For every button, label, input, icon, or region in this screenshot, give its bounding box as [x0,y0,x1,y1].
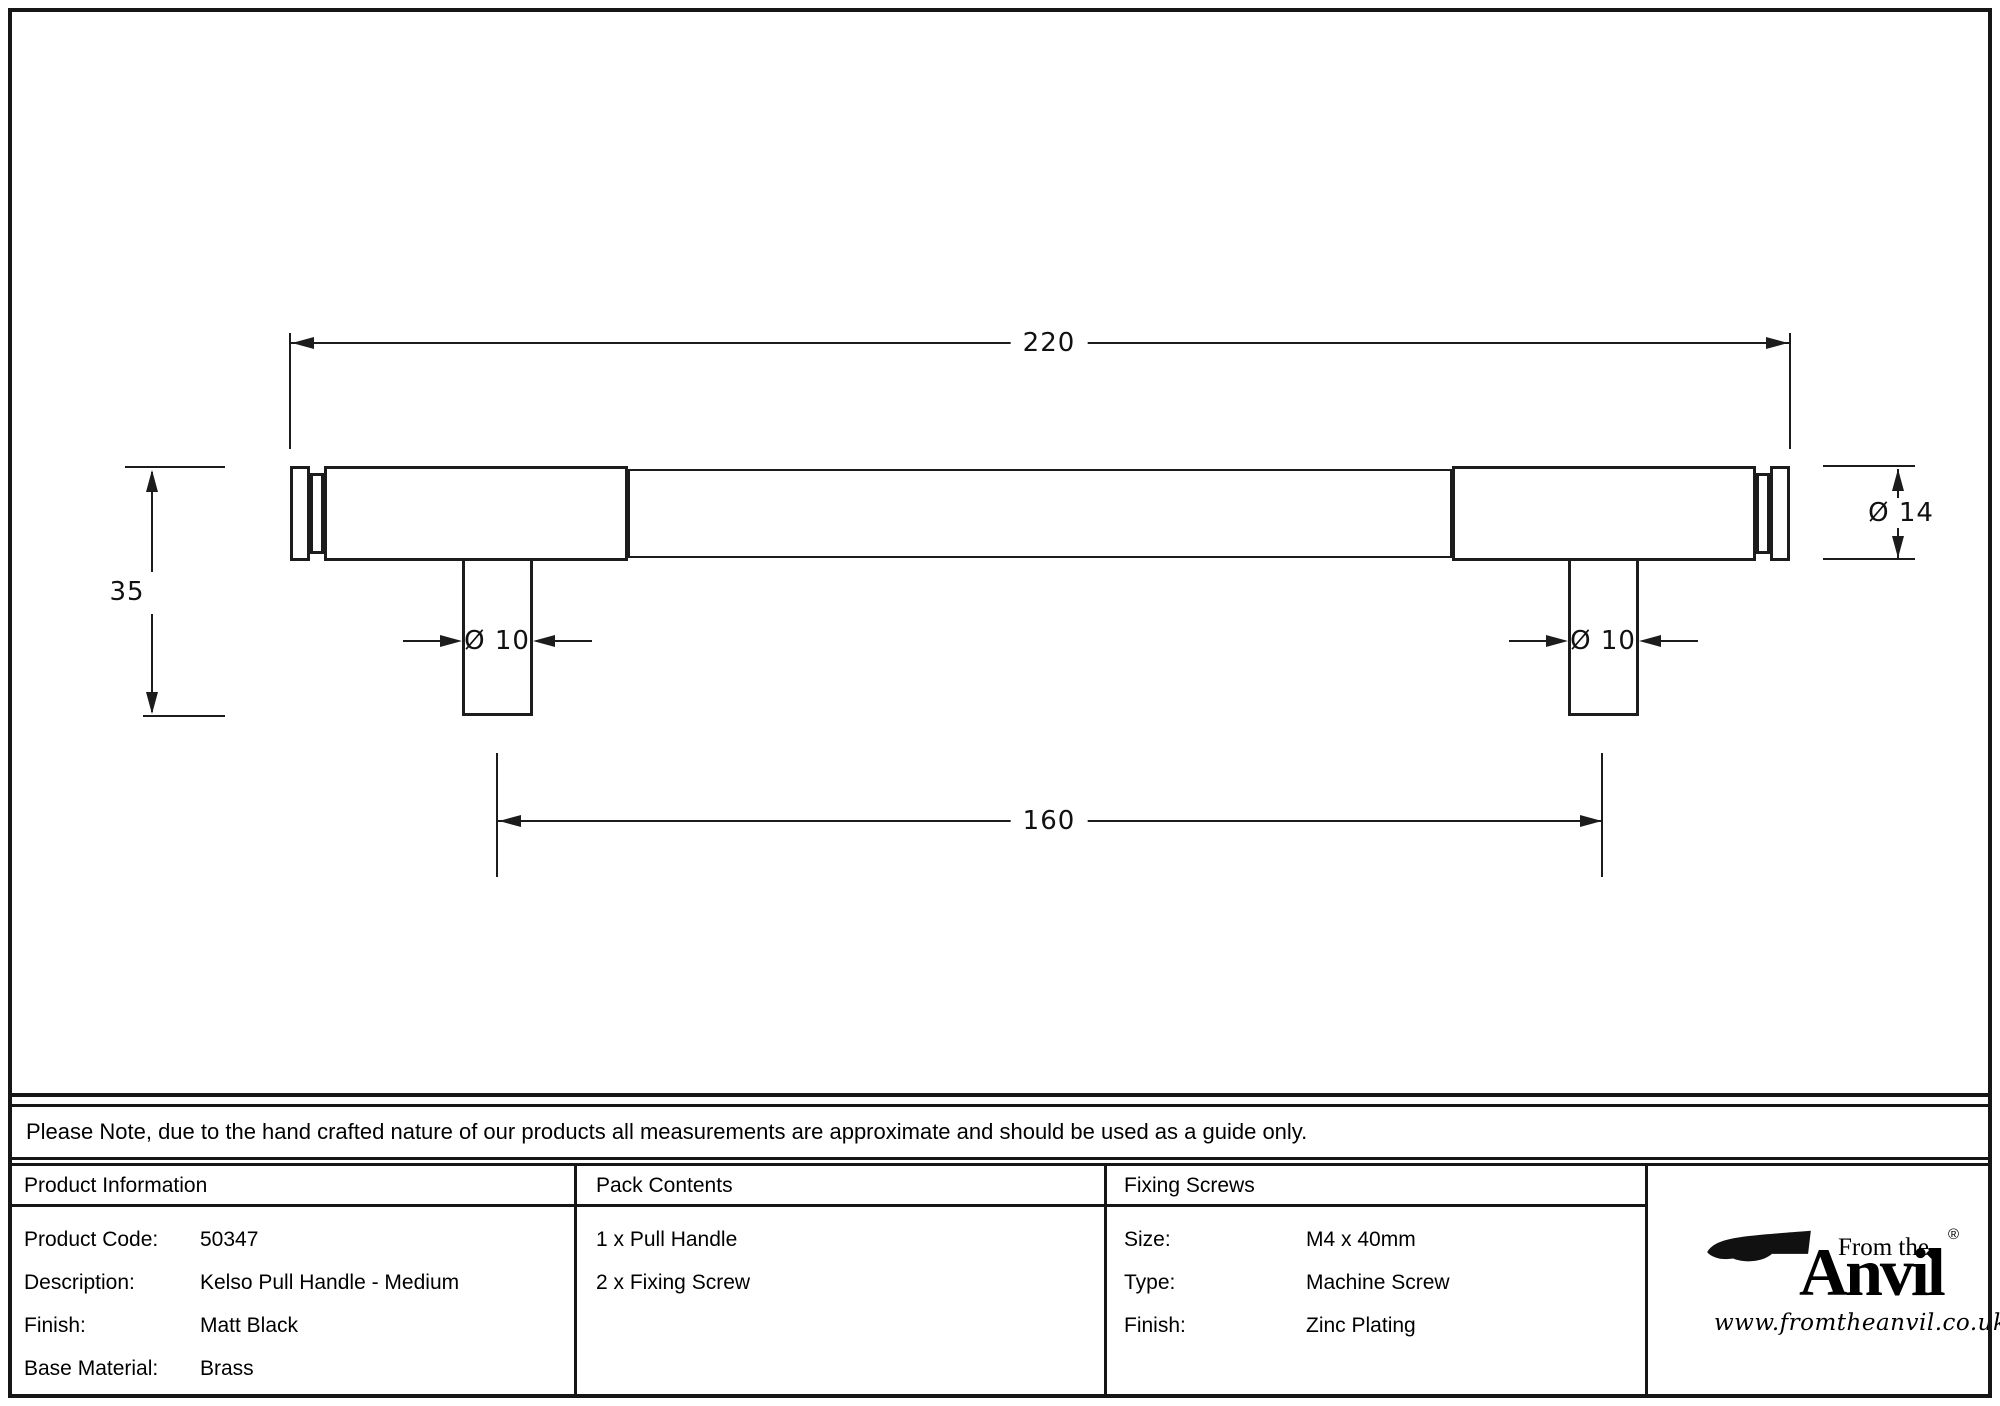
dim-arrow-icon [499,815,521,827]
dim-height-label: 35 [109,577,144,607]
extension-line [289,333,291,449]
column-divider [1645,1163,1648,1398]
row-label: Finish: [1124,1312,1306,1340]
header-product-information: Product Information [24,1172,207,1200]
dim-arrow-icon [1892,469,1904,491]
tick-line [1823,558,1915,560]
handle-grip-left [324,466,628,561]
page-border [8,8,1992,1398]
extension-line [1789,333,1791,449]
row-label: Base Material: [24,1355,200,1383]
column-divider [1104,1163,1107,1398]
table-row: Base Material:Brass [24,1355,254,1383]
registered-mark: ® [1948,1226,1959,1243]
brand-url: www.fromtheanvil.co.uk [1714,1310,2000,1336]
dim-arrow-icon [146,470,158,492]
row-value: Kelso Pull Handle - Medium [200,1271,459,1294]
dim-arrow-icon [533,635,555,647]
dim-post-diameter-right-label: Ø 10 [1570,626,1636,656]
handle-centre-bar [628,469,1452,558]
handle-grip-right [1452,466,1756,561]
handle-end-cap-left [290,466,310,561]
table-row: Finish:Zinc Plating [1124,1312,1416,1340]
row-value: Brass [200,1357,254,1380]
tick-line [143,715,225,717]
dim-overall-length-label: 220 [1011,328,1088,358]
table-row: Type:Machine Screw [1124,1269,1450,1297]
header-pack-contents: Pack Contents [596,1172,733,1200]
dim-fixing-centres-label: 160 [1011,806,1088,836]
row-label: Finish: [24,1312,200,1340]
dim-arrow-icon [1766,337,1788,349]
product-spec-sheet: 220 35 Ø 14 Ø 10 [0,0,2000,1406]
drawing-area-divider [8,1093,1992,1097]
row-value: Zinc Plating [1306,1314,1416,1337]
dim-arrow-icon [1639,635,1661,647]
dim-arrow-icon [146,692,158,714]
table-row: Description:Kelso Pull Handle - Medium [24,1269,459,1297]
row-label: Size: [1124,1226,1306,1254]
note-text: Please Note, due to the hand crafted nat… [8,1119,1307,1145]
table-row: Size:M4 x 40mm [1124,1226,1416,1254]
dim-arrow-icon [292,337,314,349]
column-divider [574,1163,577,1398]
dim-arrow-icon [440,635,462,647]
tick-line [1823,465,1915,467]
dim-arrow-icon [1892,536,1904,558]
table-row: Finish:Matt Black [24,1312,298,1340]
header-separator [12,1204,1646,1207]
handle-neck-left [310,473,324,554]
header-fixing-screws: Fixing Screws [1124,1172,1255,1200]
dim-end-diameter-label: Ø 14 [1862,498,1940,528]
row-value: 50347 [200,1228,258,1251]
dim-post-diameter-left-label: Ø 10 [464,626,530,656]
note-bar: Please Note, due to the hand crafted nat… [8,1104,1992,1160]
table-border-top [8,1163,1992,1166]
tick-line [125,466,225,468]
dim-arrow-icon [1580,815,1602,827]
row-label: Description: [24,1269,200,1297]
pack-contents-item: 1 x Pull Handle [596,1226,737,1254]
row-label: Type: [1124,1269,1306,1297]
row-value: M4 x 40mm [1306,1228,1416,1251]
pack-contents-item: 2 x Fixing Screw [596,1269,750,1297]
brand-name: Anvil [1799,1238,1943,1306]
row-value: Machine Screw [1306,1271,1450,1294]
row-label: Product Code: [24,1226,200,1254]
dim-arrow-icon [1546,635,1568,647]
handle-neck-right [1756,473,1770,554]
extension-line [496,753,498,877]
table-row: Product Code:50347 [24,1226,258,1254]
handle-end-cap-right [1770,466,1790,561]
row-value: Matt Black [200,1314,298,1337]
